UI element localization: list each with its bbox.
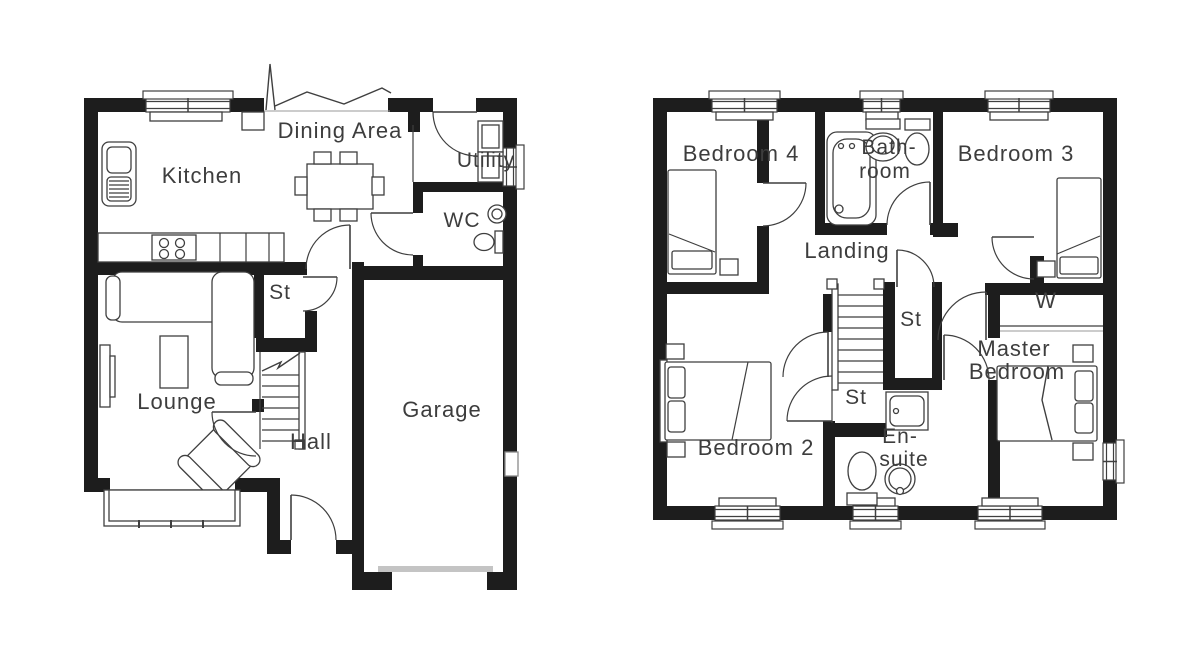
furniture <box>107 147 131 173</box>
furniture <box>847 493 877 505</box>
wall <box>653 98 667 520</box>
floorplan-image: KitchenDining AreaUtilityWCStLoungeHallG… <box>0 0 1200 662</box>
furniture <box>378 566 493 572</box>
room-label-landing: Landing <box>804 238 889 263</box>
furniture <box>720 259 738 275</box>
furniture <box>1075 403 1093 433</box>
wall <box>898 506 978 520</box>
wall <box>825 423 887 437</box>
furniture <box>314 209 331 221</box>
wall <box>305 311 317 352</box>
fixture <box>835 205 843 213</box>
wall <box>408 112 420 132</box>
room-label-bedroom-4: Bedroom 4 <box>683 141 800 166</box>
room-label-w: W <box>1035 288 1057 313</box>
furniture <box>716 112 773 120</box>
fixture <box>848 452 876 490</box>
wall <box>388 98 433 112</box>
furniture <box>482 125 499 148</box>
furniture <box>106 276 120 320</box>
wall <box>503 98 517 148</box>
room-label-kitchen: Kitchen <box>162 163 242 188</box>
floor-plan-canvas: KitchenDining AreaUtilityWCStLoungeHallG… <box>0 0 1200 662</box>
furniture <box>215 372 253 385</box>
furniture <box>152 235 196 260</box>
furniture <box>1075 371 1093 401</box>
wall <box>503 186 517 590</box>
wall <box>352 266 517 280</box>
furniture <box>212 272 254 378</box>
furniture <box>1037 261 1055 277</box>
wall <box>883 282 895 390</box>
wall <box>653 282 769 294</box>
fixture <box>894 409 899 414</box>
furniture <box>372 177 384 195</box>
room-label-bedroom-3: Bedroom 3 <box>958 141 1075 166</box>
window-icon <box>860 91 903 112</box>
furniture <box>340 209 357 221</box>
wall <box>932 282 942 378</box>
furniture <box>667 442 685 457</box>
room-label-master: Master <box>977 336 1050 361</box>
furniture <box>110 356 115 397</box>
wall <box>413 192 423 213</box>
wall <box>336 540 364 554</box>
furniture <box>295 177 307 195</box>
fixture <box>474 234 494 251</box>
window-icon <box>850 506 901 529</box>
furniture <box>832 284 838 390</box>
fixture <box>897 488 904 495</box>
room-label-utility: Utility <box>457 149 515 172</box>
furniture <box>1060 257 1098 274</box>
room-label-wc: WC <box>444 209 481 232</box>
fixture <box>176 239 185 248</box>
window-icon <box>1103 440 1124 483</box>
furniture <box>505 452 518 476</box>
furniture <box>668 401 685 432</box>
furniture <box>668 367 685 398</box>
fixture <box>160 239 169 248</box>
furniture <box>1073 345 1093 362</box>
furniture <box>905 119 930 130</box>
room-label-st: St <box>269 281 291 304</box>
furniture <box>666 344 684 359</box>
furniture <box>1073 443 1093 460</box>
wall <box>84 98 98 492</box>
wall <box>780 506 853 520</box>
room-label-en: En- <box>882 425 918 448</box>
wall <box>252 399 264 412</box>
wall <box>883 378 942 390</box>
wall <box>256 338 305 352</box>
wall <box>413 255 423 268</box>
room-label-garage: Garage <box>402 397 481 422</box>
furniture <box>307 164 373 209</box>
wall <box>230 98 264 112</box>
window-icon <box>709 91 780 112</box>
wall <box>988 283 1000 338</box>
furniture <box>990 112 1048 120</box>
wall <box>267 540 291 554</box>
furniture <box>982 498 1038 506</box>
wall <box>933 112 943 223</box>
fixture <box>850 144 855 149</box>
furniture <box>100 345 110 407</box>
furniture <box>340 152 357 164</box>
wall <box>900 98 988 112</box>
furniture <box>827 279 837 289</box>
wall <box>815 112 825 223</box>
room-label-st: St <box>845 386 867 409</box>
window-icon <box>985 91 1053 112</box>
furniture <box>866 119 900 129</box>
furniture <box>242 112 264 130</box>
wall <box>777 98 863 112</box>
room-label-room: room <box>859 160 911 183</box>
wall <box>1103 480 1117 520</box>
room-label-lounge: Lounge <box>137 389 216 414</box>
furniture <box>719 498 776 506</box>
window-icon <box>143 91 233 112</box>
furniture <box>495 231 503 253</box>
furniture <box>160 336 188 388</box>
furniture <box>874 279 884 289</box>
furniture <box>109 490 235 521</box>
wall <box>1103 98 1117 443</box>
furniture <box>672 251 712 269</box>
room-label-st: St <box>900 308 922 331</box>
room-label-bedroom: Bedroom <box>969 359 1065 384</box>
wall <box>933 223 958 237</box>
window-icon <box>975 506 1045 529</box>
wall <box>413 182 503 192</box>
room-label-bedroom-2: Bedroom 2 <box>698 435 815 460</box>
wall <box>254 275 264 338</box>
room-label-bath: Bath- <box>861 136 916 159</box>
wall <box>352 572 392 590</box>
fixture <box>839 144 844 149</box>
wall <box>487 572 517 590</box>
fixture <box>889 468 911 490</box>
furniture <box>314 152 331 164</box>
room-label-hall: Hall <box>290 429 332 454</box>
furniture <box>150 112 222 121</box>
room-label-suite: suite <box>879 448 928 471</box>
window-icon <box>712 506 783 529</box>
fixture <box>176 250 185 259</box>
fixture <box>492 209 502 219</box>
wall <box>757 226 769 282</box>
fixture <box>160 250 169 259</box>
room-label-dining-area: Dining Area <box>278 118 403 143</box>
